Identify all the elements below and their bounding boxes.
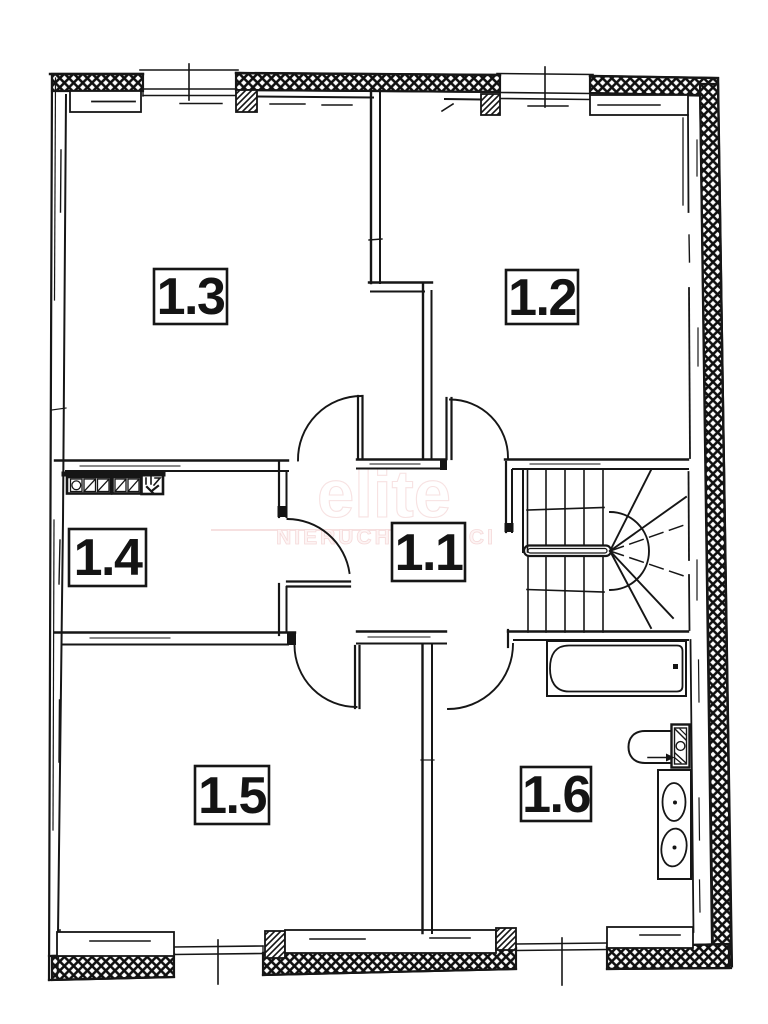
svg-text:1.5: 1.5	[198, 767, 266, 825]
svg-text:1.6: 1.6	[522, 766, 590, 824]
svg-text:1.4: 1.4	[74, 529, 143, 587]
svg-text:1.2: 1.2	[508, 269, 576, 327]
svg-text:1.3: 1.3	[157, 268, 225, 326]
svg-text:1.1: 1.1	[395, 524, 463, 582]
